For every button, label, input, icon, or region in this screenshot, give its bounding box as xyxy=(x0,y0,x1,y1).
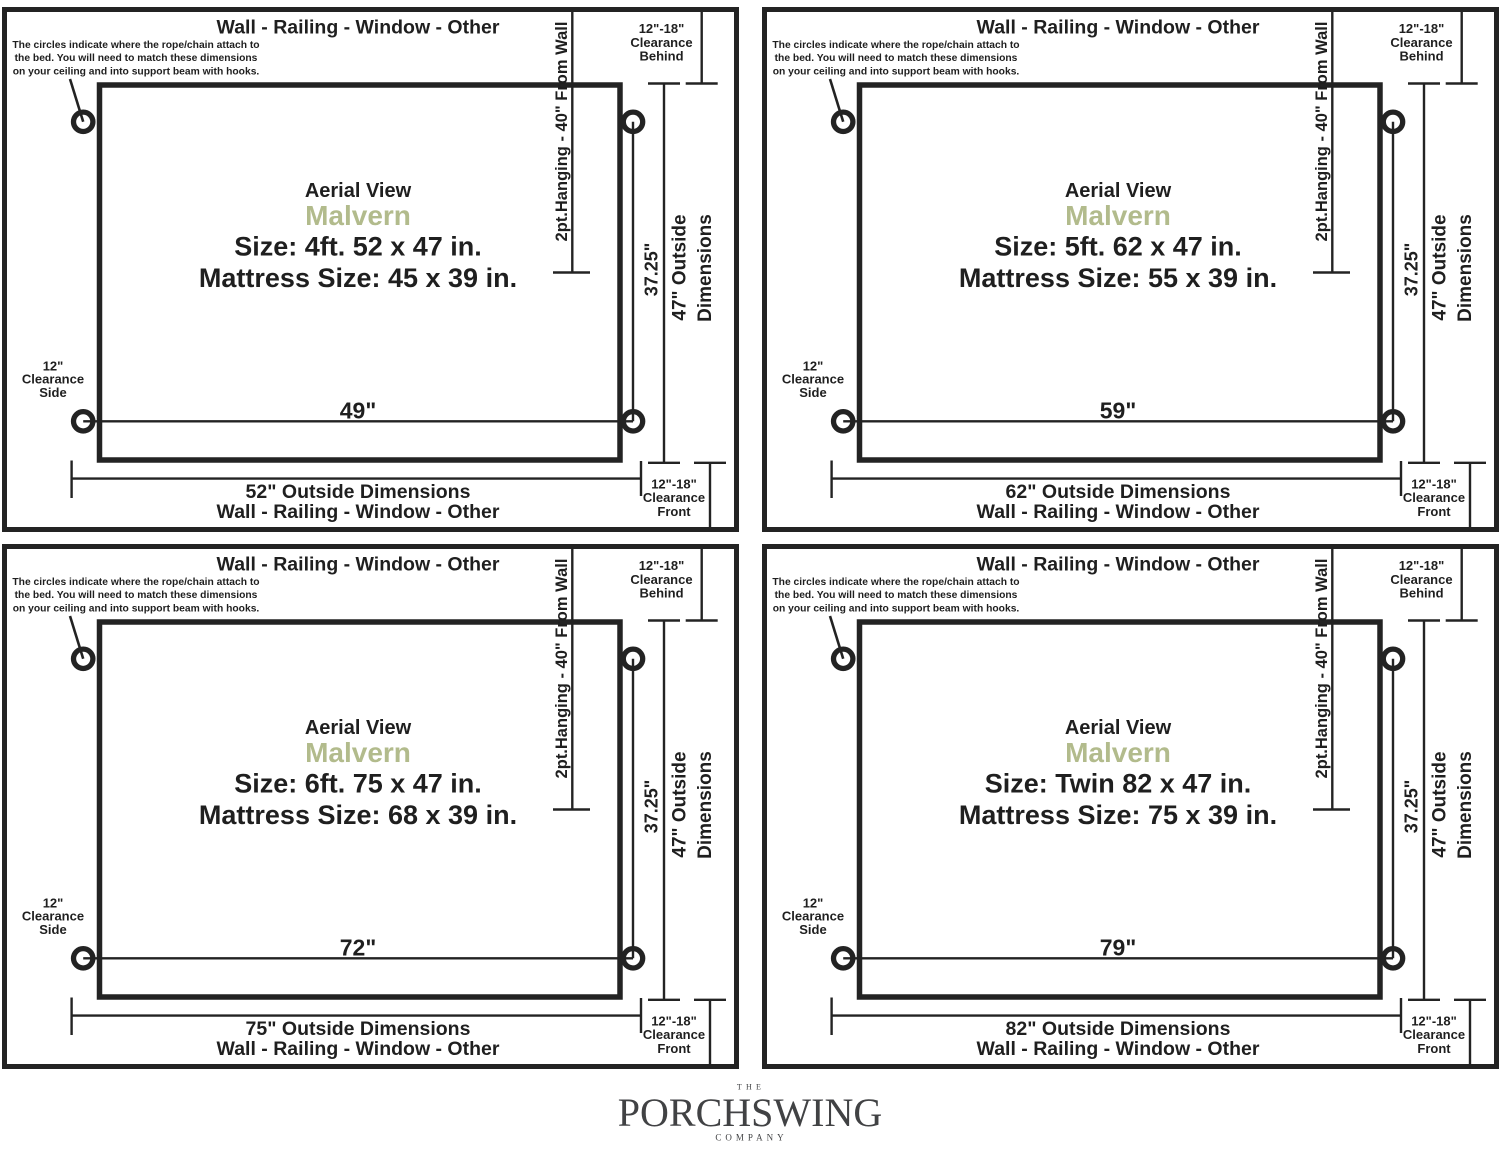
svg-text:Wall - Railing - Window - Othe: Wall - Railing - Window - Other xyxy=(977,17,1260,39)
svg-text:2pt.Hanging - 40" From Wall: 2pt.Hanging - 40" From Wall xyxy=(1313,22,1331,242)
svg-text:37.25": 37.25" xyxy=(1402,243,1422,297)
svg-text:on your ceiling and into suppo: on your ceiling and into support beam wi… xyxy=(13,66,260,77)
svg-text:Behind: Behind xyxy=(639,586,683,601)
svg-text:47" Outside: 47" Outside xyxy=(670,751,691,857)
svg-text:The circles indicate where the: The circles indicate where the rope/chai… xyxy=(772,40,1019,51)
svg-text:2pt.Hanging - 40" From Wall: 2pt.Hanging - 40" From Wall xyxy=(553,22,571,242)
svg-text:Side: Side xyxy=(39,385,66,400)
svg-text:82" Outside Dimensions: 82" Outside Dimensions xyxy=(1006,1018,1231,1040)
svg-text:Aerial View: Aerial View xyxy=(305,180,412,202)
svg-text:Front: Front xyxy=(657,504,691,519)
svg-text:on your ceiling and into suppo: on your ceiling and into support beam wi… xyxy=(773,66,1020,77)
svg-text:The circles indicate where the: The circles indicate where the rope/chai… xyxy=(12,40,259,51)
svg-text:49": 49" xyxy=(340,398,377,424)
svg-text:Mattress Size: 55 x 39 in.: Mattress Size: 55 x 39 in. xyxy=(959,263,1277,293)
svg-text:Malvern: Malvern xyxy=(1065,737,1171,768)
svg-text:PORCHSWING: PORCHSWING xyxy=(618,1090,882,1135)
svg-text:Wall - Railing - Window - Othe: Wall - Railing - Window - Other xyxy=(977,554,1260,576)
svg-text:Behind: Behind xyxy=(1399,49,1443,64)
svg-text:on your ceiling and into suppo: on your ceiling and into support beam wi… xyxy=(773,603,1020,614)
svg-text:37.25": 37.25" xyxy=(642,243,662,297)
svg-text:47" Outside: 47" Outside xyxy=(670,214,691,320)
svg-text:37.25": 37.25" xyxy=(1402,780,1422,834)
svg-text:Behind: Behind xyxy=(1399,586,1443,601)
svg-text:Wall - Railing - Window - Othe: Wall - Railing - Window - Other xyxy=(217,17,500,39)
svg-text:Wall - Railing - Window - Othe: Wall - Railing - Window - Other xyxy=(217,1038,500,1060)
svg-text:Behind: Behind xyxy=(639,49,683,64)
svg-text:Malvern: Malvern xyxy=(305,737,411,768)
svg-text:Dimensions: Dimensions xyxy=(695,751,716,859)
svg-text:COMPANY: COMPANY xyxy=(715,1133,787,1143)
svg-text:Malvern: Malvern xyxy=(1065,200,1171,231)
svg-text:52" Outside Dimensions: 52" Outside Dimensions xyxy=(246,481,471,503)
svg-text:72": 72" xyxy=(340,935,377,961)
svg-text:Size: 5ft. 62 x 47 in.: Size: 5ft. 62 x 47 in. xyxy=(994,231,1242,261)
svg-text:Side: Side xyxy=(799,385,826,400)
svg-text:79": 79" xyxy=(1100,935,1137,961)
svg-text:Size: 4ft. 52 x 47 in.: Size: 4ft. 52 x 47 in. xyxy=(234,231,482,261)
svg-text:Front: Front xyxy=(1417,504,1451,519)
svg-text:37.25": 37.25" xyxy=(642,780,662,834)
svg-text:Aerial View: Aerial View xyxy=(1065,180,1172,202)
svg-text:2pt.Hanging - 40" From Wall: 2pt.Hanging - 40" From Wall xyxy=(553,559,571,779)
svg-text:on your ceiling and into suppo: on your ceiling and into support beam wi… xyxy=(13,603,260,614)
svg-text:Dimensions: Dimensions xyxy=(1455,751,1476,859)
svg-text:Wall - Railing - Window - Othe: Wall - Railing - Window - Other xyxy=(217,554,500,576)
svg-text:Mattress Size: 45 x 39 in.: Mattress Size: 45 x 39 in. xyxy=(199,263,517,293)
svg-text:The circles indicate where the: The circles indicate where the rope/chai… xyxy=(772,577,1019,588)
svg-text:Side: Side xyxy=(799,922,826,937)
svg-text:Malvern: Malvern xyxy=(305,200,411,231)
svg-text:47" Outside: 47" Outside xyxy=(1430,751,1451,857)
svg-text:Front: Front xyxy=(657,1041,691,1056)
svg-text:Wall - Railing - Window - Othe: Wall - Railing - Window - Other xyxy=(977,501,1260,523)
svg-text:Dimensions: Dimensions xyxy=(1455,214,1476,322)
svg-text:Aerial View: Aerial View xyxy=(1065,717,1172,739)
svg-text:The circles indicate where the: The circles indicate where the rope/chai… xyxy=(12,577,259,588)
svg-text:59": 59" xyxy=(1100,398,1137,424)
svg-text:Mattress Size: 68 x 39 in.: Mattress Size: 68 x 39 in. xyxy=(199,800,517,830)
svg-text:Mattress Size: 75 x 39 in.: Mattress Size: 75 x 39 in. xyxy=(959,800,1277,830)
svg-text:Dimensions: Dimensions xyxy=(695,214,716,322)
svg-text:Aerial View: Aerial View xyxy=(305,717,412,739)
svg-text:62" Outside Dimensions: 62" Outside Dimensions xyxy=(1006,481,1231,503)
svg-text:the bed. You will need to matc: the bed. You will need to match these di… xyxy=(775,53,1018,64)
svg-text:2pt.Hanging - 40" From Wall: 2pt.Hanging - 40" From Wall xyxy=(1313,559,1331,779)
svg-text:75" Outside Dimensions: 75" Outside Dimensions xyxy=(246,1018,471,1040)
svg-text:the bed. You will need to matc: the bed. You will need to match these di… xyxy=(775,590,1018,601)
svg-text:Front: Front xyxy=(1417,1041,1451,1056)
svg-text:Side: Side xyxy=(39,922,66,937)
svg-text:Size: Twin 82 x 47 in.: Size: Twin 82 x 47 in. xyxy=(985,768,1252,798)
svg-text:Wall - Railing - Window - Othe: Wall - Railing - Window - Other xyxy=(217,501,500,523)
svg-text:the bed. You will need to matc: the bed. You will need to match these di… xyxy=(15,53,258,64)
svg-text:Size: 6ft. 75 x 47 in.: Size: 6ft. 75 x 47 in. xyxy=(234,768,482,798)
svg-text:47" Outside: 47" Outside xyxy=(1430,214,1451,320)
svg-text:the bed. You will need to matc: the bed. You will need to match these di… xyxy=(15,590,258,601)
svg-text:Wall - Railing - Window - Othe: Wall - Railing - Window - Other xyxy=(977,1038,1260,1060)
